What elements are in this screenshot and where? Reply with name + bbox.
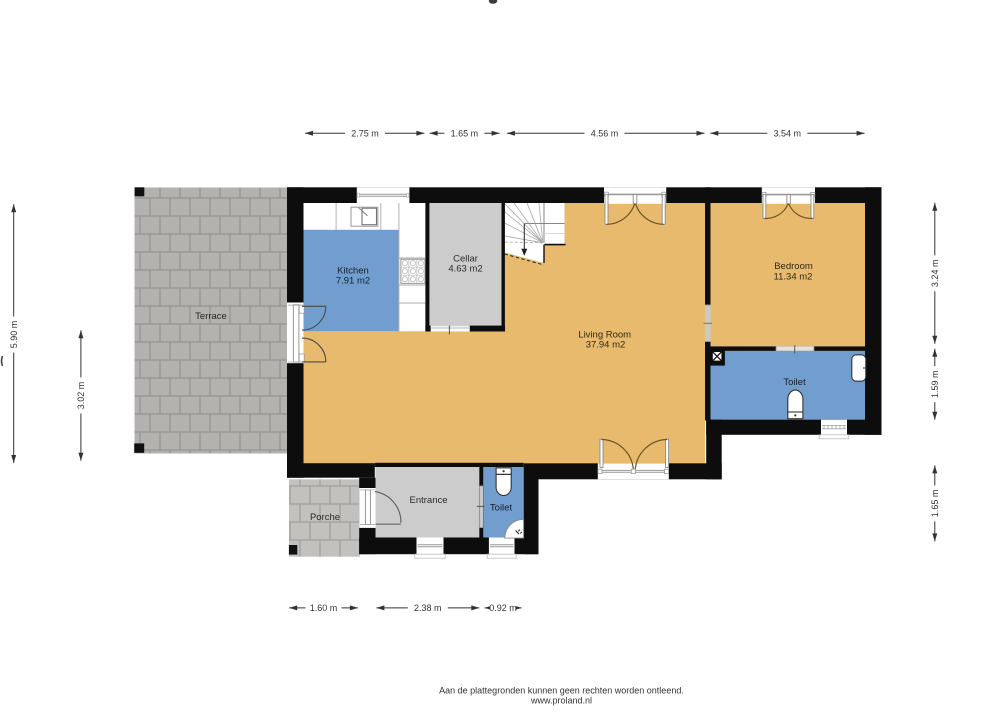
svg-text:1.59 m: 1.59 m — [930, 370, 940, 398]
svg-text:4.63 m2: 4.63 m2 — [448, 264, 482, 275]
svg-text:3.54 m: 3.54 m — [774, 129, 802, 139]
svg-text:1.65 m: 1.65 m — [451, 129, 479, 139]
svg-text:11.34 m2: 11.34 m2 — [774, 272, 813, 283]
svg-text:1.60 m: 1.60 m — [310, 603, 338, 613]
svg-text:www.proland.nl: www.proland.nl — [530, 696, 592, 706]
svg-text:5.90 m: 5.90 m — [9, 321, 19, 349]
svg-text:3.24 m: 3.24 m — [930, 260, 940, 288]
svg-text:2.75 m: 2.75 m — [351, 129, 379, 139]
svg-text:7.91 m2: 7.91 m2 — [336, 276, 370, 287]
svg-text:Bedroom: Bedroom — [774, 261, 813, 272]
svg-text:3.02 m: 3.02 m — [76, 382, 86, 410]
svg-text:37.94 m2: 37.94 m2 — [586, 340, 626, 351]
svg-text:Terrace: Terrace — [195, 311, 227, 322]
svg-text:4.56 m: 4.56 m — [591, 129, 619, 139]
svg-text:Toilet: Toilet — [490, 503, 513, 514]
svg-text:Toilet: Toilet — [783, 377, 806, 388]
svg-text:1.65 m: 1.65 m — [930, 490, 940, 518]
svg-text:Porche: Porche — [310, 512, 340, 523]
svg-text:0.92 m: 0.92 m — [489, 603, 517, 613]
svg-text:2.38 m: 2.38 m — [414, 603, 442, 613]
svg-text:Aan de plattegronden kunnen ge: Aan de plattegronden kunnen geen rechten… — [439, 686, 684, 696]
svg-text:Entrance: Entrance — [409, 495, 447, 506]
